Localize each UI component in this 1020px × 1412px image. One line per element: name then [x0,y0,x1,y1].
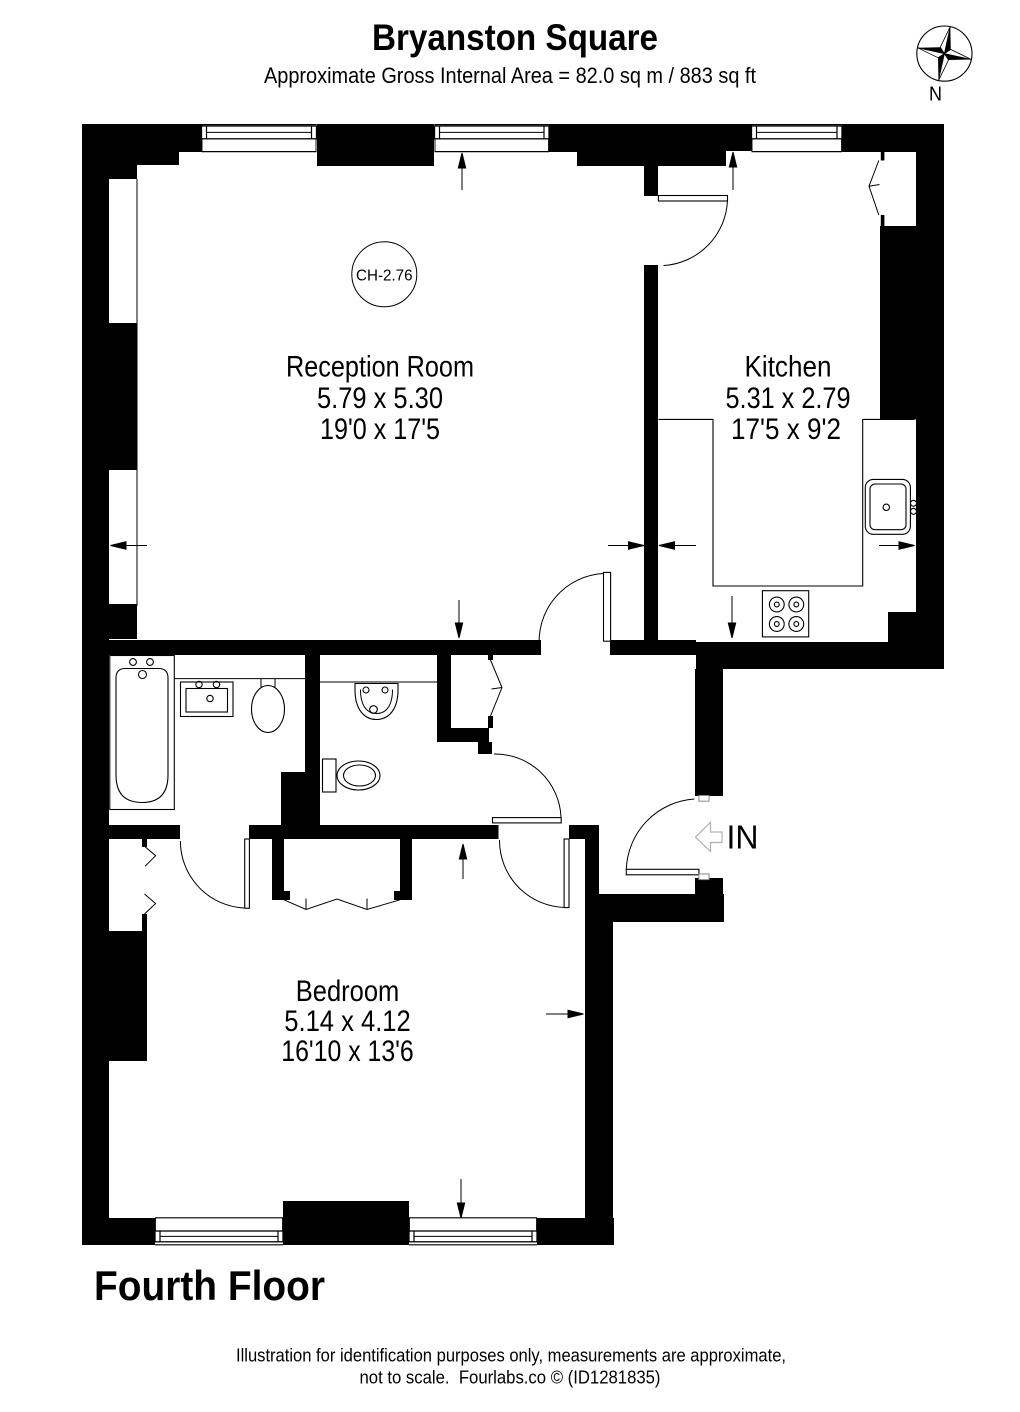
svg-text:Approximate Gross Internal Are: Approximate Gross Internal Area = 82.0 s… [264,63,756,88]
svg-text:17'5 x 9'2: 17'5 x 9'2 [731,413,841,446]
svg-text:Bedroom: Bedroom [296,975,400,1008]
svg-text:IN: IN [727,819,759,856]
svg-text:5.31 x 2.79: 5.31 x 2.79 [726,382,851,415]
svg-text:19'0 x 17'5: 19'0 x 17'5 [320,413,440,446]
svg-text:CH-2.76: CH-2.76 [356,268,413,285]
svg-text:not to scale. Fourlabs.co © (: not to scale. Fourlabs.co © (ID1281835) [360,1368,661,1388]
svg-text:16'10 x 13'6: 16'10 x 13'6 [281,1035,414,1068]
svg-text:Illustration for identificatio: Illustration for identification purposes… [236,1346,786,1366]
svg-text:N: N [929,84,942,106]
svg-text:Fourth Floor: Fourth Floor [94,1262,325,1309]
svg-text:Kitchen: Kitchen [745,351,832,384]
svg-text:5.14 x 4.12: 5.14 x 4.12 [284,1005,411,1038]
svg-text:Reception Room: Reception Room [286,351,474,384]
svg-text:Bryanston Square: Bryanston Square [372,17,658,58]
svg-text:5.79 x 5.30: 5.79 x 5.30 [317,382,443,415]
